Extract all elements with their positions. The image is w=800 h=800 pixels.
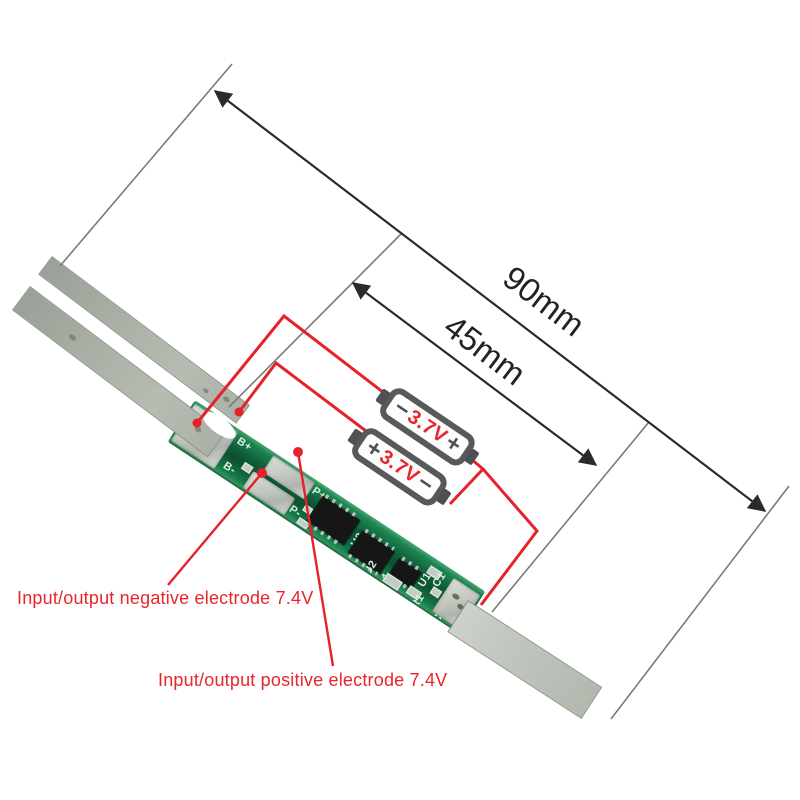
leader-line-positive — [298, 452, 333, 666]
pad-pointer-dot-positive — [293, 447, 303, 457]
negative-electrode-label: Input/output negative electrode 7.4V — [17, 588, 313, 609]
extension-line-45mm-right — [492, 422, 649, 612]
leader-line-negative — [168, 473, 262, 585]
product-image-canvas: B+ B- P- P+ U3 U2 U1 R4 C1 R1 C2 R2 — [0, 0, 800, 800]
extension-line-90mm-right — [611, 486, 789, 719]
extension-line-45mm-left — [229, 233, 402, 407]
pad-pointer-dot-negative — [257, 468, 267, 478]
positive-electrode-label: Input/output positive electrode 7.4V — [158, 670, 447, 691]
wire-to-output-pad — [481, 469, 537, 605]
dimension-label-90mm: 90mm — [496, 258, 591, 343]
extension-line-90mm-left — [60, 64, 232, 266]
solder-point-dot — [193, 419, 202, 428]
wire-cell1-negative — [197, 316, 388, 423]
solder-point-dot — [235, 408, 244, 417]
dimension-label-45mm: 45mm — [437, 307, 532, 392]
wire-cell2-positive — [239, 363, 366, 431]
